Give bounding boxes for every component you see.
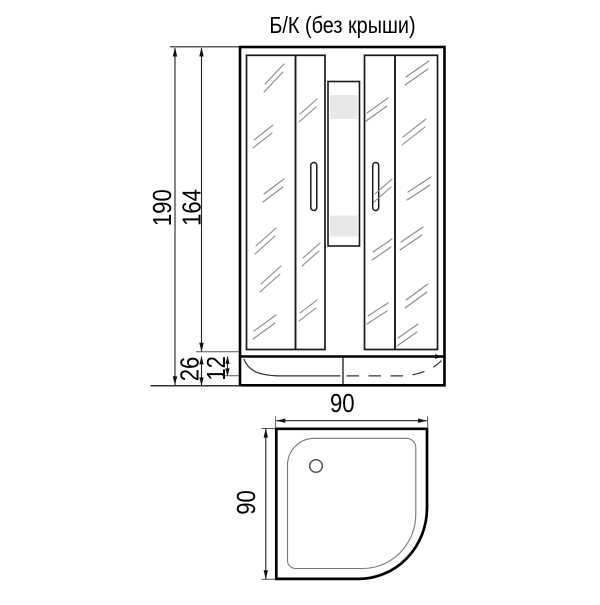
svg-text:12: 12 (202, 356, 231, 381)
svg-text:90: 90 (232, 490, 261, 515)
svg-text:164: 164 (178, 189, 207, 226)
svg-text:26: 26 (176, 357, 205, 382)
svg-text:Б/К (без крыши): Б/К (без крыши) (269, 11, 415, 38)
svg-text:190: 190 (148, 189, 177, 226)
svg-text:90: 90 (330, 389, 355, 418)
